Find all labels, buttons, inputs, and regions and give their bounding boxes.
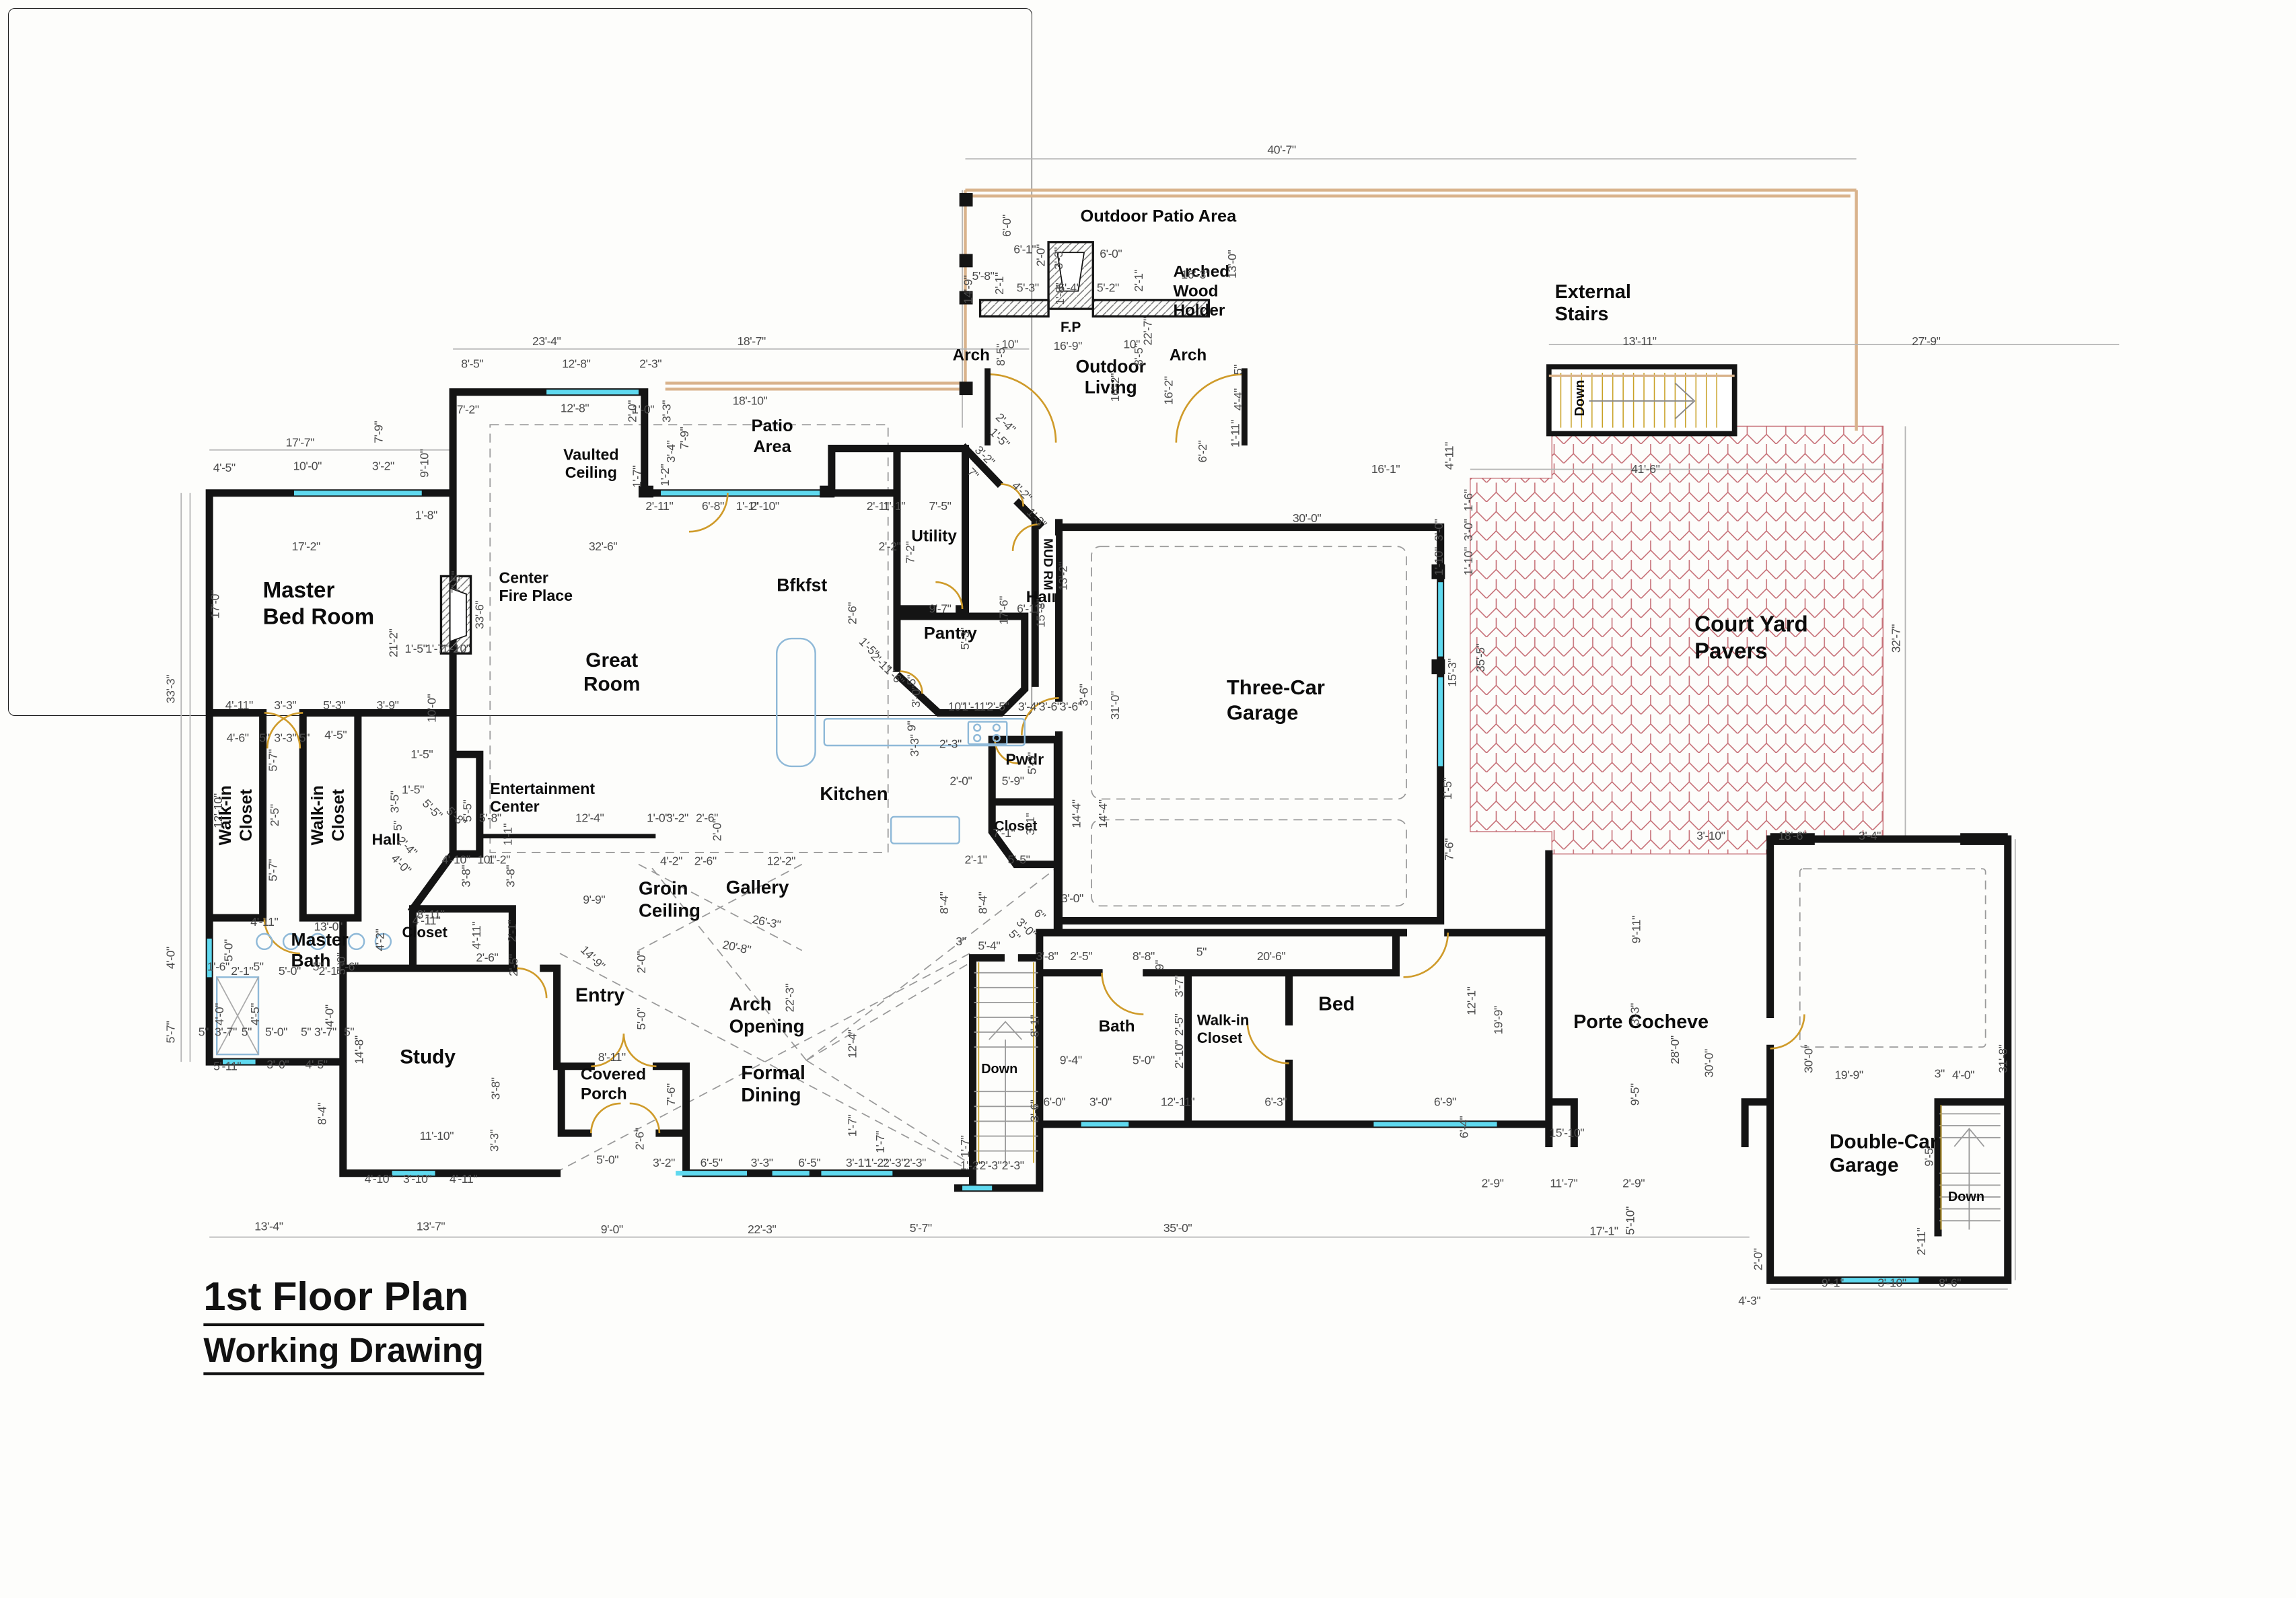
dimension-label: 17'-7" (286, 436, 314, 449)
dimension-label: 28'-0" (1668, 1036, 1682, 1064)
dimension-label: 5'-8" (972, 270, 994, 283)
dimension-label: 3'-7" (215, 1025, 237, 1039)
dimension-label: 17'-6" (997, 596, 1011, 624)
dimension-label: 5" (392, 821, 405, 831)
dimension-label: 15'-8" (1034, 599, 1048, 627)
dimension-label: 4'-11" (250, 916, 278, 929)
dimension-label: 8'-6" (1939, 1276, 1961, 1290)
dimension-label: 2'-5" (987, 700, 1009, 714)
dimension-label: 6'-2" (1196, 441, 1210, 463)
room-label-walk-in-closet-3: Walk-inCloset (1197, 1013, 1250, 1048)
dimension-label: 13'-2" (1056, 562, 1070, 590)
room-label-arch-right: Arch (1170, 347, 1207, 366)
dimension-label: 1'-7" (959, 1135, 972, 1157)
dimension-label: 5'-3" (323, 698, 345, 712)
dimension-label: 2'-0" (635, 951, 648, 974)
dimension-label: 16'-3" (1181, 268, 1209, 281)
dimension-label: 32'-7" (1890, 624, 1903, 653)
dimension-label: 33'-3" (164, 675, 178, 703)
dimension-label: 1'-8" (1054, 283, 1067, 305)
dimension-label: 2'-0" (711, 819, 724, 841)
dimension-label: 2'-2" (878, 540, 900, 553)
dimension-label: 3'-6" (1028, 1100, 1042, 1122)
dimension-label: 2'-11" (645, 500, 673, 513)
dimension-label: 4'-3" (1738, 1295, 1760, 1308)
dimension-label: 9" (1153, 960, 1167, 970)
dimension-label: 1'-7" (631, 466, 644, 488)
dimension-label: 8'-5" (461, 357, 483, 371)
dimension-label: 3'-4" (1018, 700, 1040, 714)
dimension-label: 18'-7" (738, 335, 766, 349)
stairs-garage (1939, 1105, 2000, 1229)
dimension-label: 11'-7" (1550, 1177, 1577, 1190)
dimension-label: 4'-4" (1232, 388, 1246, 410)
dimension-label: 12'-4" (846, 1029, 859, 1058)
dimension-label: 5'-3" (1026, 752, 1039, 774)
dimension-label: 11'-10" (420, 1130, 454, 1143)
room-label-utility: Utility (911, 528, 956, 548)
dimension-label: 3'-10" (403, 1173, 431, 1186)
dimension-label: 12'-2" (767, 855, 795, 868)
dimension-label: 9'-1" (1822, 1276, 1844, 1290)
dimension-label: 8'-5" (1133, 344, 1146, 366)
dimension-label: 12'-1" (1465, 986, 1478, 1015)
dimension-label: 30'-0" (1293, 511, 1321, 525)
dimension-label: 5'-10" (1624, 1206, 1637, 1235)
dimension-label: 6'-3" (1264, 1095, 1287, 1109)
dimension-label: 3'-9" (377, 698, 399, 712)
dimension-label: 2'-6" (694, 855, 717, 868)
dimension-label: 3'-3" (274, 731, 296, 745)
stair-label-down-ext: Down (1572, 379, 1587, 416)
room-label-mud-rm: MUD RM (1041, 536, 1056, 593)
dimension-label: 1'-5" (1441, 778, 1455, 800)
dimension-label: 5'-3" (959, 628, 972, 650)
dimension-label: 2'-11" (1915, 1228, 1929, 1256)
dimension-label: 5'-4" (978, 939, 1000, 953)
dimension-label: 1'-7" (874, 1131, 888, 1153)
dimension-label: 12'-8" (562, 357, 590, 371)
dimension-label: 9'-5" (1628, 1083, 1642, 1105)
dimension-label: 1'-6" (207, 960, 229, 974)
dimension-label: 7'-9" (678, 427, 691, 449)
room-label-court-yard-pavers: Court YardPavers (1694, 612, 1808, 665)
dimension-label: 2'-3" (904, 1156, 926, 1169)
dimension-label: 31'-0" (1108, 691, 1122, 719)
dimension-label: 33'-6" (473, 601, 487, 629)
dimension-label: 2'-6" (846, 602, 859, 624)
dimension-label: 1'-8" (415, 509, 437, 522)
dimension-label: 2'-10" (750, 500, 779, 513)
dimension-label: 5'-5" (1007, 853, 1030, 867)
dimension-label: 16'-2" (1108, 373, 1122, 402)
dimension-label: 3'-10" (1877, 1276, 1906, 1290)
dimension-label: 8'-1" (1028, 1015, 1042, 1038)
dimension-label: 3'-3" (1052, 248, 1066, 270)
dimension-label: 4'-11" (1443, 442, 1456, 470)
dimension-label: 5'-0" (222, 939, 236, 961)
dimension-label: 6'-4" (1458, 1116, 1471, 1138)
room-label-three-car-garage: Three-CarGarage (1227, 675, 1325, 724)
dimension-label: 31'-8" (1997, 1045, 2010, 1073)
dimension-label: 9'-4" (1060, 1054, 1082, 1067)
dimension-label: 1'-5" (402, 783, 424, 797)
dimension-label: 3'-2" (666, 811, 688, 825)
dimension-label: 3'-8" (504, 865, 517, 887)
dimension-label: 12'-4" (575, 811, 604, 825)
dimension-label: 7'-6" (1443, 838, 1456, 861)
dimension-label: 1'-7" (846, 1115, 859, 1137)
dimension-label: 2'-5" (1070, 950, 1092, 964)
dimension-label: 5'-0" (265, 1025, 287, 1039)
dimension-label: 13'-4" (254, 1220, 283, 1233)
room-label-bath-2: Bath (1099, 1018, 1135, 1038)
dimension-label: 3'-8" (489, 1077, 503, 1099)
dimension-label: 2'-5" (1172, 1013, 1186, 1036)
dimension-label: 7'-5" (929, 500, 951, 513)
dimension-label: 3'-7" (314, 1025, 336, 1039)
dimension-label: 5'-8" (479, 811, 501, 825)
dimension-label: 3" (1935, 1067, 1945, 1081)
dimension-label: 7'-5" (450, 571, 463, 593)
dimension-label: 3'-8" (1036, 950, 1058, 964)
room-label-center-fire-place: CenterFire Place (499, 570, 573, 607)
room-label-arch-left: Arch (953, 347, 990, 366)
dimension-label: 22'-7" (1141, 317, 1155, 345)
room-label-walk-in-closet-2: Walk-inCloset (310, 785, 350, 845)
dimension-label: 3'-3" (660, 400, 674, 423)
dimension-label: 6'-0" (1000, 215, 1013, 237)
dimension-label: 30'-0" (1802, 1045, 1816, 1073)
dimension-label: 35'-5" (1474, 644, 1487, 672)
dimension-label: 4'-5" (306, 1058, 328, 1072)
dimension-label: 1'-11" (962, 700, 989, 714)
dimension-label: 13'-0" (314, 920, 343, 933)
dimension-label: 18'-10" (733, 394, 768, 408)
dimension-label: 5" (259, 731, 269, 745)
stair-label-down-mid: Down (981, 1061, 1017, 1077)
dimension-label: 2'-1" (964, 853, 986, 867)
dimension-label: 8'-5" (995, 344, 1008, 366)
dimension-label: 9'-10" (418, 449, 431, 477)
dimension-label: 4'-10" (365, 1173, 393, 1186)
dimension-label: 9'-11" (1630, 916, 1643, 943)
dimension-label: 3'-0" (910, 686, 923, 708)
room-label-f-p: F.P (1061, 320, 1081, 336)
dimension-label: 7'-6" (665, 1083, 678, 1105)
room-label-master-bed-room: MasterBed Room (263, 578, 375, 630)
dimension-label: 5'-2" (1097, 281, 1119, 295)
room-label-vaulted-ceiling: VaultedCeiling (563, 447, 618, 484)
dimension-label: 4'-0" (1952, 1068, 1974, 1082)
dimension-label: 4'-2" (373, 929, 387, 951)
dimension-label: 5" (253, 960, 263, 974)
dimension-label: 3'-0" (1433, 519, 1446, 541)
room-label-entry: Entry (575, 984, 624, 1007)
dimension-label: 4'-5" (324, 729, 347, 742)
dimension-label: 17'-0" (209, 590, 222, 618)
plan-area: MasterBed RoomWalk-inClosetWalk-inCloset… (0, 0, 2296, 1598)
room-label-kitchen: Kitchen (820, 784, 888, 806)
dimension-label: 2'-1" (993, 273, 1006, 295)
dimension-label: 2'-3" (980, 1159, 1002, 1173)
dimension-label: 2'-9" (1481, 1177, 1503, 1190)
dimension-label: 3'-3" (908, 735, 922, 757)
dimension-label: 2'-10" (1172, 1040, 1186, 1068)
room-label-external-stairs: ExternalStairs (1555, 280, 1631, 326)
dimension-label: 17'-2" (291, 540, 320, 553)
dimension-label: 3'-3" (488, 1130, 501, 1152)
dimension-label: 2'-3" (939, 737, 962, 751)
dimension-label: 7'-2" (904, 542, 917, 564)
dimension-label: 12'-10" (211, 793, 225, 828)
dimension-label: 5'-0" (596, 1153, 618, 1167)
dimension-label: 9'-9" (583, 894, 605, 907)
dimension-label: 2'-0" (949, 774, 972, 788)
dimension-label: 1'-5" (410, 748, 433, 761)
dimension-label: 4'-11" (412, 914, 440, 928)
dimension-label: 22'-3" (783, 984, 797, 1012)
dimension-label: 9'-5" (1923, 1145, 1936, 1167)
dimension-label: 8'-4" (976, 892, 990, 914)
room-label-gallery: Gallery (726, 877, 789, 900)
dimension-label: 3'-2" (653, 1156, 675, 1169)
dimension-label: 9" (905, 721, 919, 731)
dimension-label: 14'-4" (1070, 799, 1083, 828)
dimension-label: 5" (1196, 945, 1207, 959)
dimension-label: 13'-11" (1622, 335, 1656, 349)
dimension-label: 3'-3" (1628, 1003, 1642, 1025)
dimension-label: 2'-9" (1622, 1177, 1645, 1190)
room-label-groin-ceiling: GroinCeiling (639, 878, 701, 922)
dimension-label: 5'-3" (1017, 281, 1039, 295)
dimension-label: 4'-0" (323, 1005, 336, 1027)
dimension-label: 8'-11" (598, 1051, 626, 1064)
dimension-label: 1'-11" (1229, 420, 1242, 447)
dimension-label: 9'-0" (601, 1223, 623, 1237)
room-label-bfkfst: Bfkfst (777, 575, 827, 595)
room-label-bed-2: Bed (1318, 992, 1355, 1015)
dimension-label: 3'-0" (1462, 519, 1476, 541)
courtyard-pavers-hatch (1470, 426, 1884, 854)
dimension-label: 23'-4" (532, 335, 561, 349)
dimension-label: 5" (199, 1025, 209, 1039)
dimension-label: 3" (956, 935, 966, 948)
dimension-label: 4'-11" (225, 698, 253, 712)
dimension-label: 3'-6" (1039, 700, 1061, 714)
dimension-label: 12'-11" (1161, 1095, 1194, 1109)
dimension-label: 2'-1" (505, 920, 519, 942)
dimension-label: 1'-1" (883, 500, 905, 513)
dimension-label: 17'-1" (1589, 1225, 1618, 1238)
dimension-label: 8'-4" (938, 892, 952, 914)
dimension-label: 3'-3" (751, 1156, 773, 1169)
dimension-label: 3'-3" (274, 698, 296, 712)
room-label-covered-porch: CoveredPorch (581, 1066, 646, 1105)
dimension-label: 7'-2" (457, 403, 479, 416)
dimension-label: 4'-5" (213, 461, 236, 474)
dimension-label: 5'-7" (910, 1221, 932, 1235)
dimension-label: 2'-3" (883, 1156, 905, 1169)
dimension-label: 10'-0" (425, 694, 439, 723)
dimension-label: 1'-0" (632, 403, 654, 416)
dimension-label: 40'-7" (1267, 143, 1295, 157)
dimension-label: 8'-8" (1133, 950, 1155, 964)
dimension-label: 5" (301, 1025, 311, 1039)
dimension-label: 3'-8" (460, 865, 473, 887)
dimension-label: 1'-1" (501, 824, 515, 846)
dimension-label: 15'-3" (1445, 659, 1459, 687)
dimension-label: 8'-4" (316, 1103, 329, 1125)
dimension-label: 4'-0" (164, 947, 178, 969)
room-label-outdoor-patio-area: Outdoor Patio Area (1081, 208, 1237, 228)
floor-plan-sheet: MasterBed RoomWalk-inClosetWalk-inCloset… (0, 0, 2296, 1598)
dimension-label: 1'-6" (336, 960, 359, 974)
dimension-label: 15'-10" (1549, 1126, 1584, 1140)
dimension-label: 14'-4" (1097, 799, 1110, 828)
dimension-label: 3'-7" (1172, 975, 1186, 997)
dimension-label: 4'-0" (213, 1003, 227, 1025)
dimension-label: 18'-6" (1779, 830, 1807, 843)
room-label-study: Study (400, 1046, 456, 1069)
dimension-label: 10'-0" (293, 460, 322, 473)
dimension-label: 5'-11" (213, 1060, 241, 1073)
dimension-label: 21'-2" (387, 629, 400, 657)
dimension-label: 5" (299, 731, 310, 745)
dimension-label: 20'-6" (1257, 950, 1285, 964)
dimension-label: 6'-1" (1013, 243, 1036, 256)
dimension-label: 3'-0" (266, 1058, 289, 1072)
dimension-label: 3'-4" (665, 441, 678, 463)
dimension-label: 2'-1" (231, 965, 253, 978)
dimension-label: 1'-10" (441, 643, 470, 656)
dimension-label: 30'-0" (1702, 1049, 1716, 1077)
dimension-label: 5'-5" (461, 800, 474, 822)
dimension-label: 5'-0" (279, 965, 301, 978)
dimension-label: 6'-0" (1100, 247, 1122, 260)
dimension-label: 12'-8" (561, 402, 589, 415)
dimension-label: 1'-2" (659, 464, 672, 486)
room-label-closet-hall: Closet (402, 925, 447, 943)
dimension-label: 2'-5" (268, 804, 281, 826)
dimension-label: 6'-0" (1043, 1095, 1065, 1109)
room-label-great-room: GreatRoom (583, 649, 640, 696)
dimension-label: 9'-7" (929, 602, 951, 616)
dimension-label: 2'-0" (1752, 1248, 1765, 1270)
dimension-label: 13'-7" (417, 1220, 445, 1233)
room-label-double-car-garage: Double-CarGarage (1830, 1130, 1938, 1177)
dimension-label: 5" (1232, 365, 1246, 375)
dimension-label: 14'-8" (353, 1036, 366, 1064)
dimension-label: 19'-9" (1834, 1068, 1863, 1082)
dimension-label: 4'-11" (470, 922, 483, 949)
dimension-label: 4'-11" (450, 1173, 477, 1186)
dimension-label: 2'-5" (507, 954, 521, 976)
dimension-label: 1'-5" (404, 643, 427, 656)
dimension-label: 41'-6" (1631, 463, 1659, 476)
dimension-label: 5'-0" (1133, 1054, 1155, 1067)
dimension-label: 4'-6" (227, 731, 249, 745)
dimension-label: 13'-0" (1226, 250, 1240, 279)
dimension-label: 19'-9" (1492, 1006, 1505, 1034)
stair-label-down-garage: Down (1948, 1189, 1984, 1204)
dimension-label: 6'-5" (798, 1156, 820, 1169)
dimension-label: 5'-0" (635, 1008, 648, 1030)
dimension-label: 3'-0" (1061, 892, 1083, 905)
dimension-label: 1'-10" (1462, 547, 1476, 575)
dimension-label: 16'-2" (1162, 376, 1176, 404)
dimension-label: 7'-1" (993, 826, 1015, 840)
dimension-label: 3'-2" (372, 460, 394, 473)
dimension-label: 3'-4" (1859, 830, 1881, 843)
dimension-label: 7'-9" (372, 421, 386, 443)
dimension-label: 2'-1" (1133, 270, 1146, 292)
dimension-label: 3'-1" (1024, 813, 1038, 836)
dimension-label: 5" (242, 1025, 252, 1039)
dimension-label: 6'-8" (702, 500, 724, 513)
dimension-label: 5'-7" (164, 1021, 178, 1044)
dimension-label: 2'-6" (633, 1128, 647, 1150)
dimension-label: 5" (905, 675, 919, 685)
dimension-label: 35'-0" (1163, 1221, 1192, 1235)
dimension-label: 2'-3" (639, 357, 661, 371)
dimension-label: 3'-0" (1089, 1095, 1112, 1109)
dimension-label: 16'-1" (1371, 463, 1400, 476)
dimension-label: 6'-5" (701, 1156, 723, 1169)
dimension-label: 3'-10" (1696, 830, 1725, 843)
dimension-label: 1'-10" (1433, 547, 1446, 575)
dimension-label: 5'-9" (1002, 774, 1024, 788)
dimension-label: 27'-9" (1912, 335, 1940, 349)
title-block: 1st Floor Plan Working Drawing (203, 1274, 483, 1375)
dimension-label: 2'-3" (1002, 1159, 1024, 1173)
dimension-label: 2'-0" (1034, 244, 1048, 266)
drawing-subtitle: Working Drawing (203, 1331, 483, 1375)
drawing-title: 1st Floor Plan (203, 1274, 483, 1326)
dimension-label: 22'-3" (748, 1223, 776, 1237)
dimension-label: 6'-9" (1434, 1095, 1456, 1109)
dimension-label: 5'-7" (266, 750, 280, 772)
dimension-label: 1'-6" (1462, 489, 1476, 511)
room-label-formal-dining: FormalDining (741, 1061, 805, 1107)
dimension-label: 32'-6" (589, 540, 617, 553)
dimension-label: 3'-5" (388, 791, 402, 813)
dimension-label: 3'-6" (1060, 700, 1082, 714)
dimension-label: 2'-6" (476, 951, 498, 965)
room-label-patio-area: PatioArea (752, 418, 793, 458)
dimension-label: 16'-9" (1054, 339, 1082, 353)
dimension-label: 5'-7" (266, 859, 280, 881)
dimension-label: 4'-5" (249, 1003, 262, 1025)
dimension-label: 4'-2" (660, 855, 682, 868)
